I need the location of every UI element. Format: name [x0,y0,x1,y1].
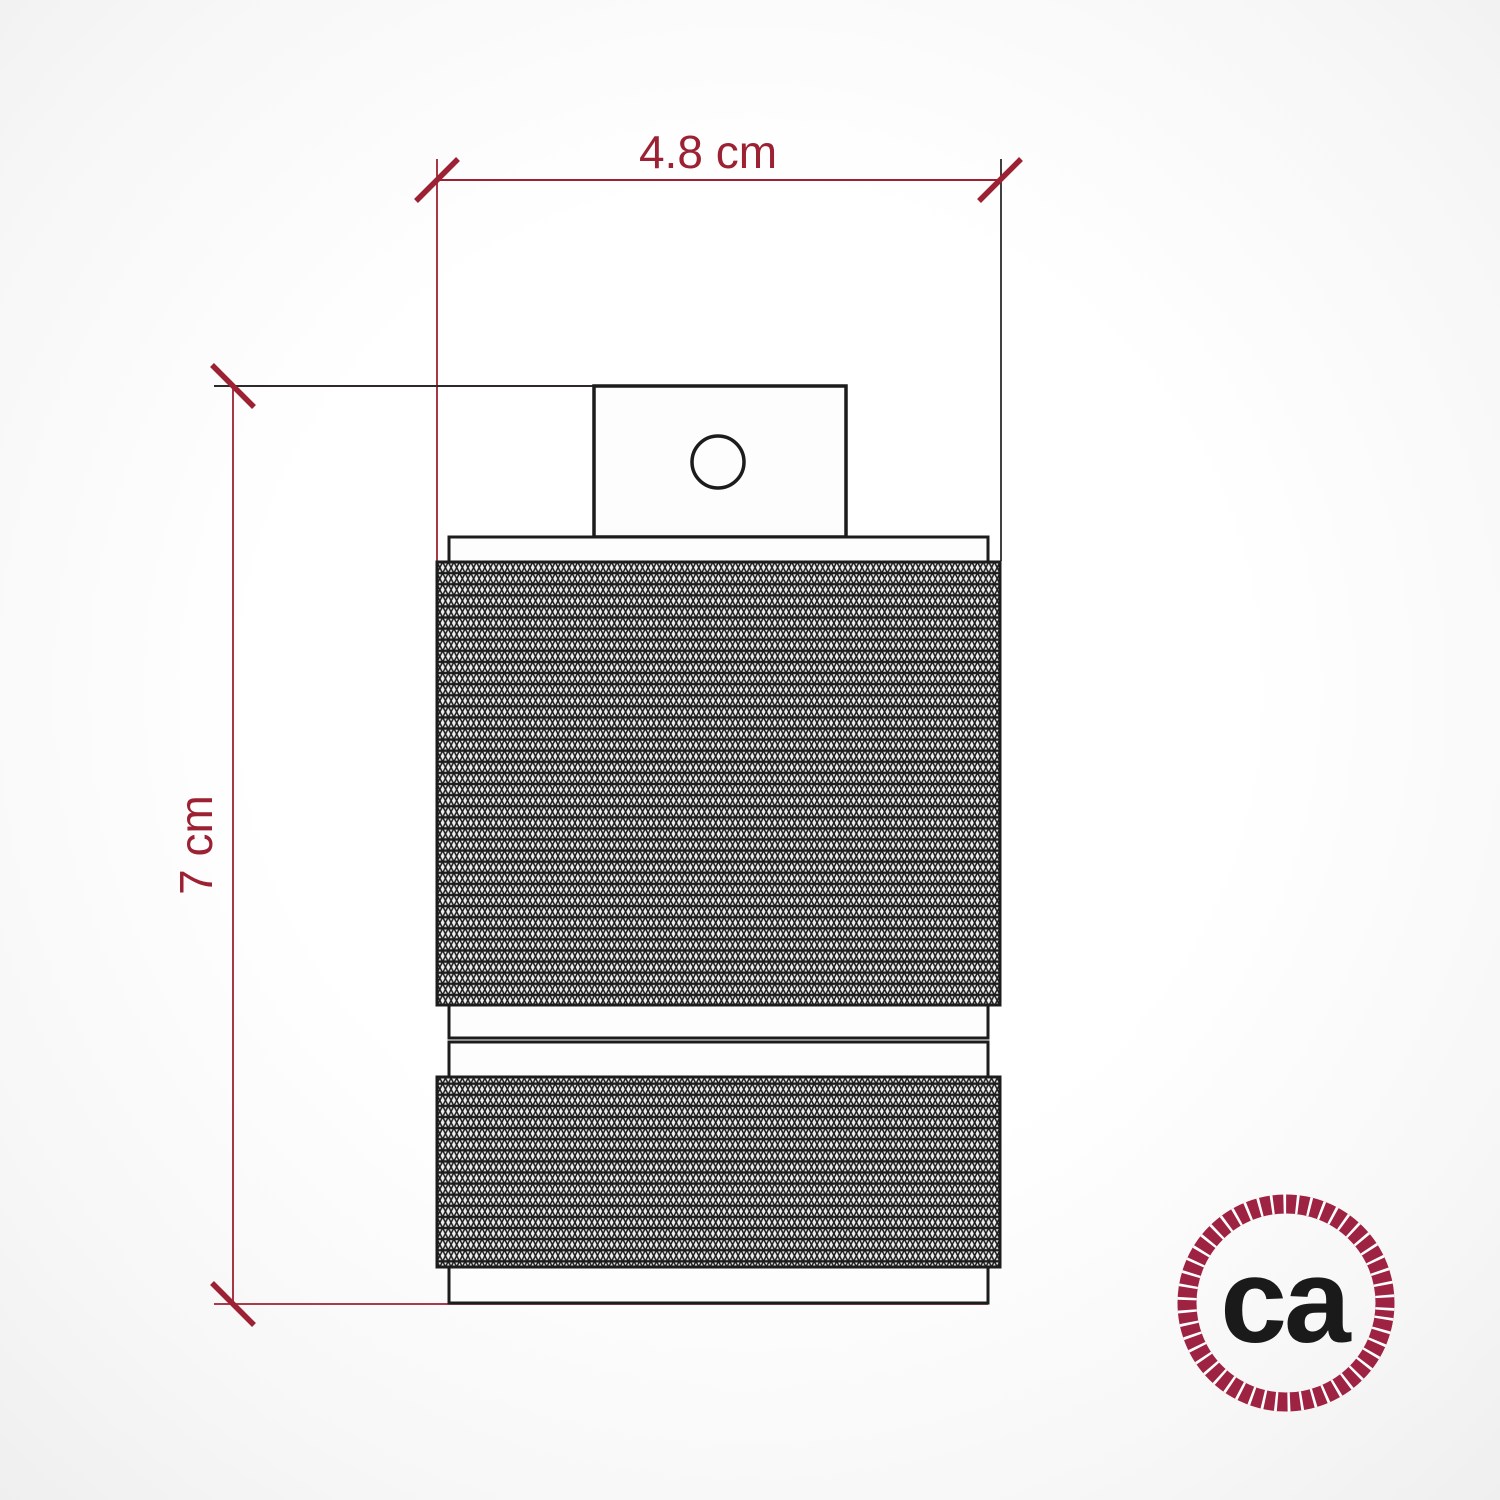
knurled-ring-lower [437,1077,1000,1267]
bottom-band-outline [449,1267,988,1303]
middle-band-upper [449,1005,988,1038]
logo-text: ca [1220,1234,1352,1368]
brand-logo: ca [1174,1191,1398,1415]
cap-hole-circle [692,436,744,488]
height-dimension-label: 7 cm [170,795,222,895]
product-drawing [437,386,1000,1303]
middle-band-lower [449,1042,988,1077]
upper-plate-outline [449,537,988,562]
drawing-canvas: 4.8 cm 7 cm ca [0,0,1500,1500]
width-dimension-label: 4.8 cm [639,126,777,178]
knurled-ring-upper [437,562,1000,1005]
